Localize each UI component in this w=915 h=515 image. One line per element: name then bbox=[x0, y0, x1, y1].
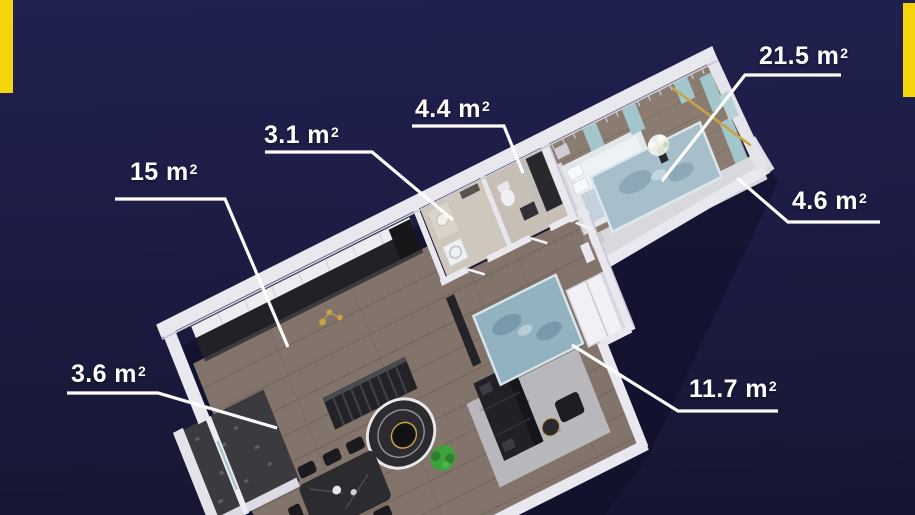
area-value: 4.4 m bbox=[415, 95, 481, 123]
area-label-wc: 4.4 m2 bbox=[415, 97, 490, 122]
area-exponent: 2 bbox=[769, 378, 777, 394]
area-label-living-kitchen: 15 m2 bbox=[130, 160, 198, 185]
area-label-balcony-left: 3.6 m2 bbox=[71, 362, 146, 387]
area-exponent: 2 bbox=[331, 124, 339, 140]
area-value: 4.6 m bbox=[792, 187, 858, 215]
area-label-hallway: 11.7 m2 bbox=[689, 377, 777, 402]
accent-bar-top-right bbox=[903, 3, 915, 97]
area-label-bedroom: 21.5 m2 bbox=[759, 44, 848, 69]
accent-bar-top-left bbox=[0, 0, 13, 93]
area-exponent: 2 bbox=[138, 363, 146, 379]
floor-plan-render bbox=[0, 0, 915, 515]
area-value: 3.1 m bbox=[264, 121, 330, 149]
area-exponent: 2 bbox=[859, 190, 867, 206]
area-value: 11.7 m bbox=[689, 375, 768, 403]
area-value: 3.6 m bbox=[71, 360, 137, 388]
area-value: 15 m bbox=[130, 158, 189, 186]
area-exponent: 2 bbox=[840, 45, 848, 61]
area-label-balcony-right: 4.6 m2 bbox=[792, 189, 867, 214]
promo-image: 15 m2 3.1 m2 4.4 m2 21.5 m2 4.6 m2 3.6 m… bbox=[0, 0, 915, 515]
area-label-bathroom: 3.1 m2 bbox=[264, 123, 339, 148]
area-value: 21.5 m bbox=[759, 42, 839, 70]
area-exponent: 2 bbox=[190, 161, 198, 177]
area-exponent: 2 bbox=[482, 98, 490, 114]
